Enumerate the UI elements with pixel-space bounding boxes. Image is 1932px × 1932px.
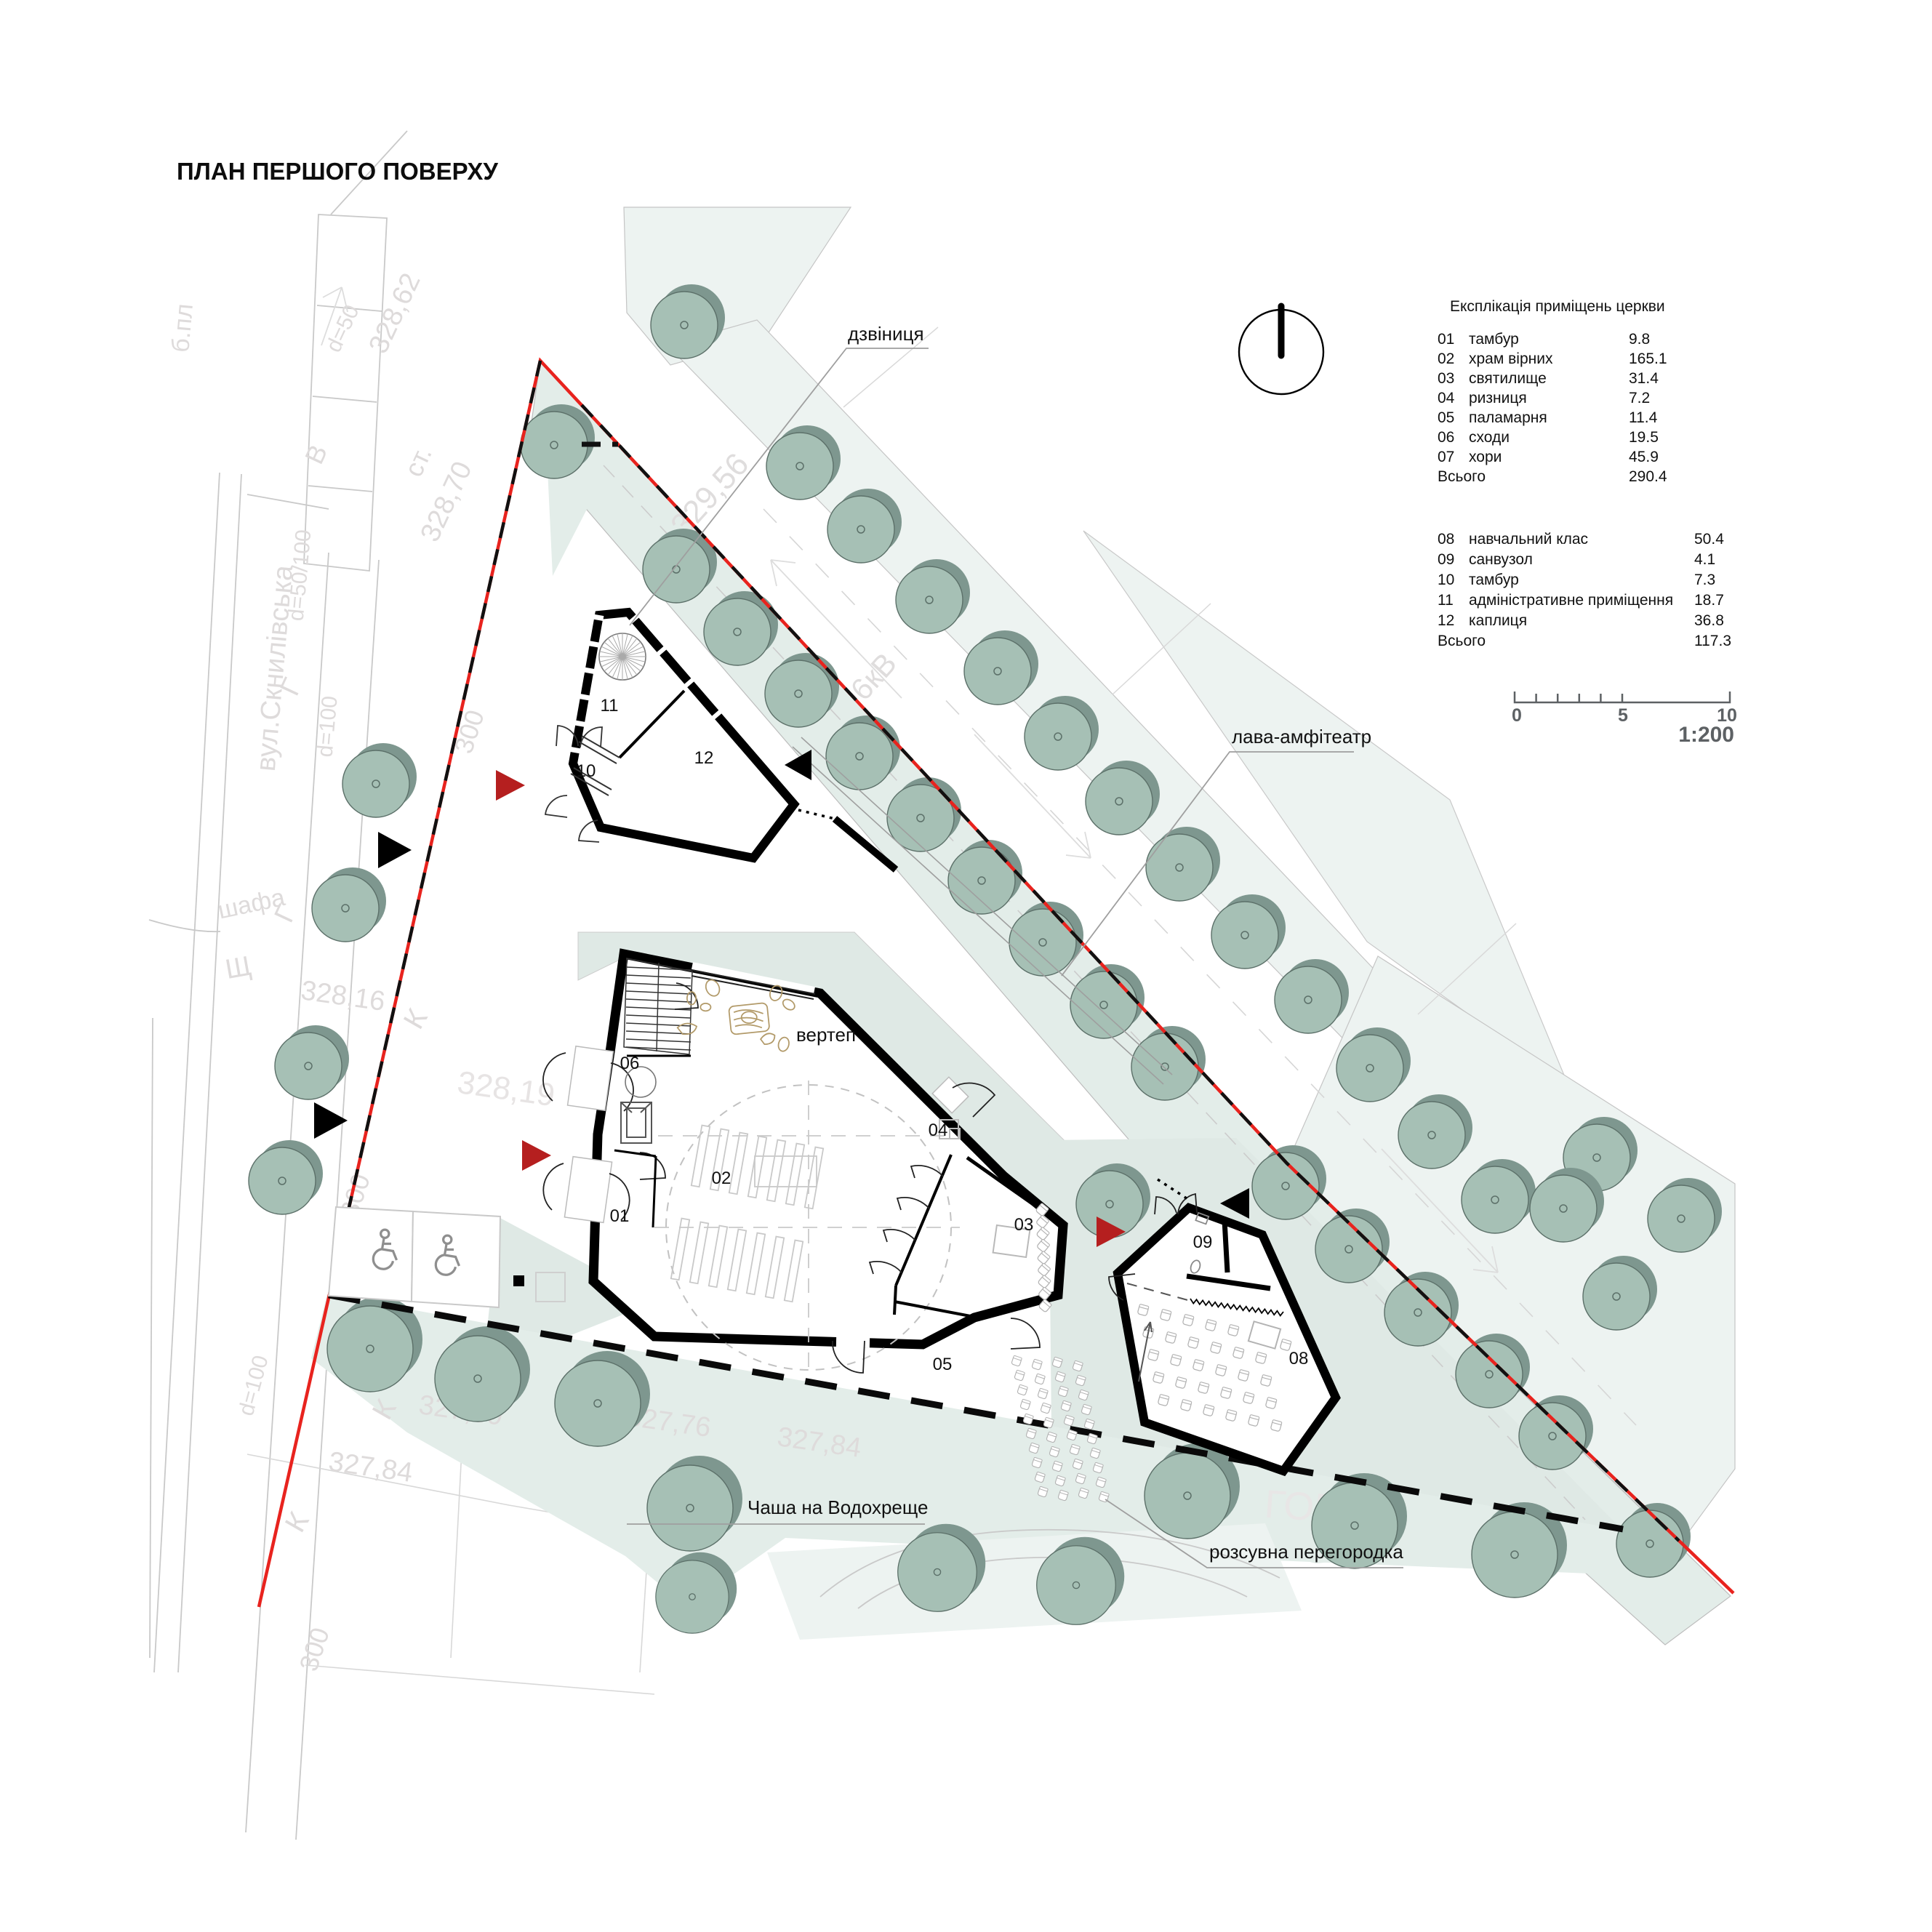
svg-text:10: 10	[1438, 572, 1454, 588]
svg-text:04: 04	[1438, 390, 1455, 406]
svg-text:08: 08	[1438, 531, 1454, 548]
svg-text:санвузол: санвузол	[1469, 551, 1533, 568]
svg-text:тамбур: тамбур	[1469, 331, 1519, 348]
svg-text:Чаша на Водохреще: Чаша на Водохреще	[747, 1496, 928, 1518]
svg-text:09: 09	[1193, 1232, 1213, 1252]
svg-text:10: 10	[577, 761, 596, 781]
svg-text:5: 5	[1618, 705, 1628, 726]
svg-text:11.4: 11.4	[1629, 409, 1658, 426]
svg-text:03: 03	[1014, 1215, 1034, 1235]
svg-text:05: 05	[933, 1355, 953, 1374]
svg-text:36.8: 36.8	[1694, 612, 1724, 629]
svg-text:7.2: 7.2	[1629, 390, 1650, 406]
svg-text:ПЛАН ПЕРШОГО ПОВЕРХУ: ПЛАН ПЕРШОГО ПОВЕРХУ	[177, 158, 498, 185]
svg-text:вертеп: вертеп	[796, 1024, 856, 1046]
svg-text:12: 12	[694, 748, 714, 768]
svg-text:ризниця: ризниця	[1469, 390, 1527, 406]
svg-text:165.1: 165.1	[1629, 350, 1667, 367]
svg-text:б.пл: б.пл	[167, 302, 199, 353]
svg-text:03: 03	[1438, 370, 1454, 387]
svg-text:31.4: 31.4	[1629, 370, 1659, 387]
svg-text:навчальний клас: навчальний клас	[1469, 531, 1588, 548]
svg-text:9.8: 9.8	[1629, 331, 1650, 348]
svg-text:05: 05	[1438, 409, 1454, 426]
svg-text:1:200: 1:200	[1678, 723, 1734, 747]
svg-text:117.3: 117.3	[1694, 633, 1731, 649]
svg-text:сходи: сходи	[1469, 429, 1510, 446]
svg-text:лава-амфітеатр: лава-амфітеатр	[1232, 726, 1371, 747]
svg-text:Всього: Всього	[1438, 468, 1486, 485]
svg-text:4.1: 4.1	[1694, 551, 1715, 568]
svg-text:12: 12	[1438, 612, 1454, 629]
svg-text:7.3: 7.3	[1694, 572, 1715, 588]
svg-text:дзвіниця: дзвіниця	[848, 323, 924, 345]
svg-text:06: 06	[620, 1054, 640, 1073]
svg-text:19.5: 19.5	[1629, 429, 1659, 446]
svg-text:07: 07	[1438, 449, 1454, 465]
svg-text:тамбур: тамбур	[1469, 572, 1519, 588]
svg-text:08: 08	[1289, 1349, 1309, 1368]
svg-text:45.9: 45.9	[1629, 449, 1659, 465]
svg-text:паламарня: паламарня	[1469, 409, 1547, 426]
svg-text:18.7: 18.7	[1694, 592, 1724, 609]
svg-text:06: 06	[1438, 429, 1454, 446]
svg-text:каплиця: каплиця	[1469, 612, 1527, 629]
svg-text:Щ: Щ	[223, 950, 254, 985]
svg-text:хори: хори	[1469, 449, 1502, 465]
svg-text:розсувна перегородка: розсувна перегородка	[1209, 1541, 1403, 1563]
svg-text:11: 11	[1438, 592, 1454, 609]
svg-text:адміністративне приміщення: адміністративне приміщення	[1469, 592, 1673, 609]
svg-text:храм вірних: храм вірних	[1469, 350, 1553, 367]
svg-text:02: 02	[1438, 350, 1454, 367]
svg-text:01: 01	[1438, 331, 1454, 348]
svg-text:04: 04	[929, 1121, 948, 1140]
svg-text:01: 01	[610, 1206, 630, 1226]
svg-text:11: 11	[601, 696, 619, 716]
svg-text:Всього: Всього	[1438, 633, 1486, 649]
svg-text:50.4: 50.4	[1694, 531, 1724, 548]
svg-text:святилище: святилище	[1469, 370, 1547, 387]
svg-text:Експлікація приміщень церкви: Експлікація приміщень церкви	[1450, 298, 1665, 315]
svg-text:09: 09	[1438, 551, 1454, 568]
svg-text:02: 02	[712, 1169, 731, 1188]
svg-text:290.4: 290.4	[1629, 468, 1667, 485]
svg-text:0: 0	[1512, 705, 1522, 726]
